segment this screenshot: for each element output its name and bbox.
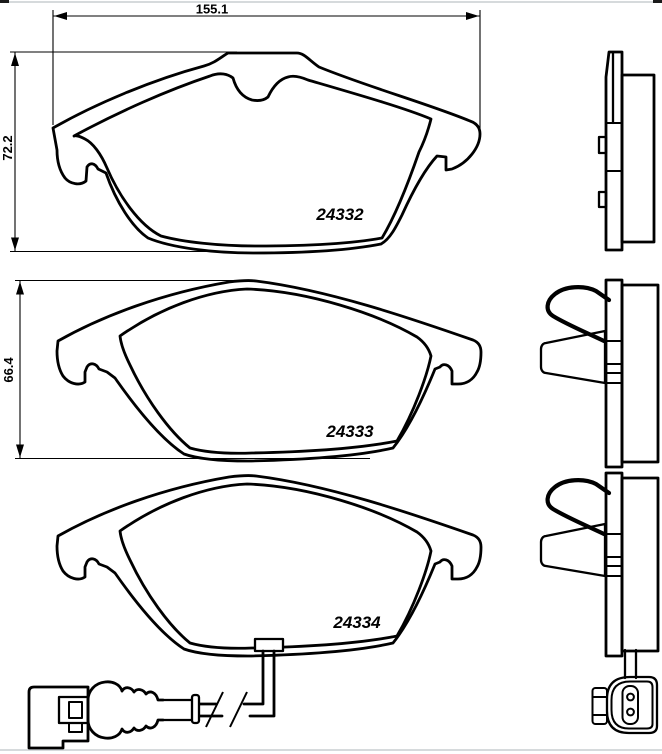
connector-pin-hole-upper — [627, 694, 634, 701]
pad2-part-number: 24333 — [325, 422, 374, 441]
sensor-tip-cylinder — [163, 700, 192, 720]
connector-latch-tab — [69, 723, 82, 732]
chamfer-lines — [606, 341, 622, 383]
arrowhead-up-icon — [11, 53, 19, 66]
friction-material-edge — [622, 478, 658, 651]
sensor-connector-end-view — [593, 677, 658, 733]
wire-break-marks — [206, 692, 247, 727]
friction-material-edge — [622, 285, 658, 462]
side-view-bottom — [541, 473, 658, 733]
sensor-rubber-boot — [88, 682, 163, 738]
pad1-front-view: 24332 — [53, 53, 480, 253]
sensor-mount-tab — [255, 639, 283, 651]
pad3-front-view: 24334 — [57, 476, 481, 656]
pad3-part-number: 24334 — [332, 613, 381, 632]
dimension-height-pad1: 72.2 — [0, 52, 237, 252]
arrowhead-left-icon — [54, 12, 67, 20]
plate-segment-lines — [606, 123, 622, 171]
connector-pin-hole-lower — [627, 709, 634, 716]
pad1-friction-material-contour — [74, 74, 431, 246]
backing-plate-edge — [606, 473, 622, 656]
retaining-tab-lower — [599, 192, 606, 207]
scan-corner-mark-right — [653, 0, 662, 3]
friction-material-edge — [622, 75, 654, 242]
technical-drawing: 155.1 72.2 66.4 24332 24333 24334 — [0, 0, 662, 754]
pad3-backing-plate-contour — [57, 476, 481, 656]
arrowhead-right-icon — [466, 12, 479, 20]
arrowhead-down-icon — [11, 238, 19, 251]
retaining-tab-upper — [599, 137, 606, 153]
sensor-wire-stub — [625, 650, 636, 678]
connector-pin-slot — [623, 686, 639, 724]
arrowhead-up-icon — [16, 282, 24, 295]
extension-lines — [15, 281, 370, 459]
pad1-part-number: 24332 — [315, 205, 364, 224]
pad3-friction-material-contour — [120, 484, 431, 648]
connector-plug-cavity — [59, 697, 88, 723]
chamfer-lines — [606, 534, 622, 576]
dimension-height-pad2: 66.4 — [1, 281, 370, 459]
connector-latch-tab — [593, 688, 608, 724]
height-dimension-label: 72.2 — [0, 135, 15, 160]
side-view-middle — [541, 280, 658, 467]
extension-lines — [10, 52, 237, 252]
connector-terminal — [69, 702, 82, 718]
wire-crimp — [192, 695, 199, 723]
scan-corner-mark-left — [0, 0, 9, 3]
side-view-top — [599, 52, 654, 250]
brake-pad-technical-drawing-page: 155.1 72.2 66.4 24332 24333 24334 — [0, 0, 662, 754]
dimension-width: 155.1 — [53, 2, 480, 131]
pad2-front-view: 24333 — [57, 281, 481, 461]
width-dimension-label: 155.1 — [196, 2, 229, 17]
connector-latch-lines — [593, 697, 608, 715]
arrowhead-down-icon — [16, 445, 24, 458]
pad2-backing-plate-contour — [57, 281, 481, 461]
sensor-wire — [199, 651, 274, 716]
pad2-friction-material-contour — [120, 289, 431, 453]
connector-inner-shell — [612, 682, 653, 729]
height-dimension-label: 66.4 — [1, 357, 16, 383]
pad1-backing-plate-contour — [53, 53, 480, 253]
